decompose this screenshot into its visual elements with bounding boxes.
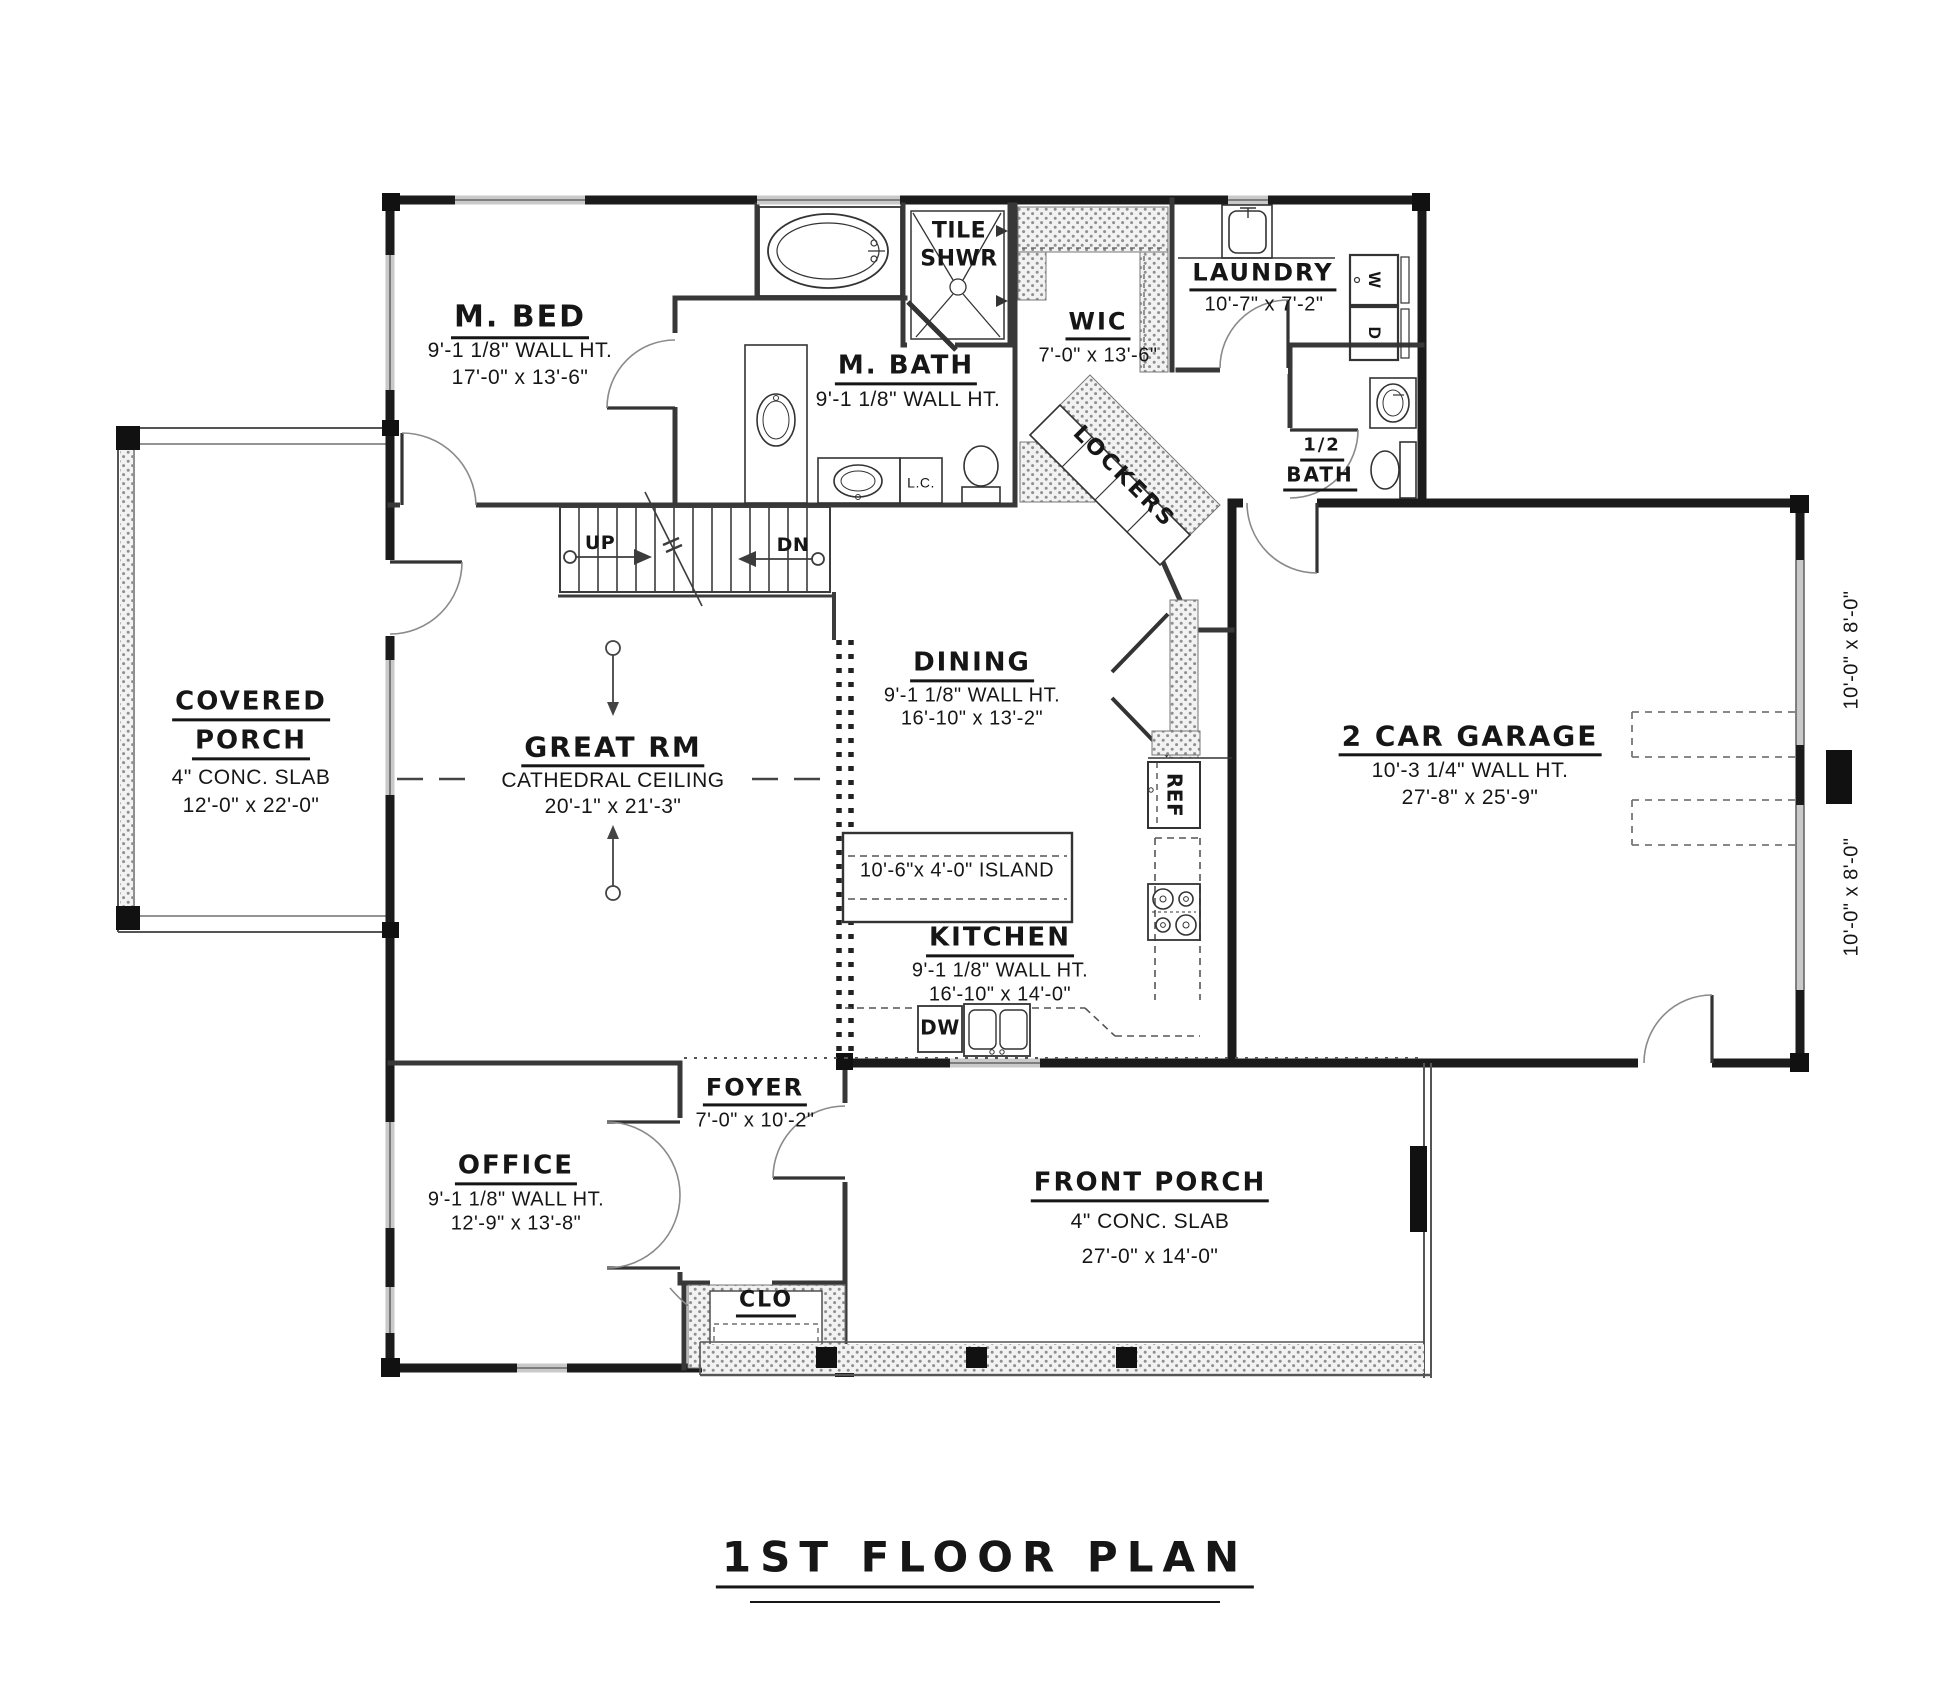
dining-wall-height: 9'-1 1/8" WALL HT. (884, 686, 1060, 707)
sheet-title-underline (750, 1601, 1220, 1603)
island-size: 10'-6"x 4'-0" ISLAND (860, 861, 1054, 882)
stairs-up-label: UP (585, 534, 615, 554)
porch-edge-hatch (120, 432, 133, 928)
linen-closet-label: L.C. (907, 476, 935, 491)
dryer-label: D (1365, 327, 1383, 340)
washer-label: W (1365, 272, 1383, 289)
room-label-foyer: FOYER (703, 1075, 807, 1106)
room-label-closet: CLO (736, 1288, 796, 1317)
garage-size: 27'-8" x 25'-9" (1402, 787, 1539, 809)
kitchen-sink (964, 1004, 1030, 1056)
room-label-m-bath: M. BATH (835, 352, 977, 385)
room-label-covered-porch-line1: COVERED (172, 688, 330, 721)
room-label-half-bath-line1: 1/2 (1300, 437, 1344, 462)
room-label-covered-porch-line2: PORCH (192, 727, 310, 760)
stairs (558, 492, 834, 640)
dishwasher-label: DW (920, 1018, 960, 1039)
half-bath-fixtures (1370, 378, 1416, 498)
room-label-dining: DINING (910, 649, 1034, 682)
room-label-garage: 2 CAR GARAGE (1339, 721, 1602, 756)
room-label-wic: WIC (1065, 309, 1130, 340)
pantry-hatch (1152, 731, 1200, 755)
room-label-office: OFFICE (455, 1152, 577, 1185)
garage-door-headers (1632, 712, 1796, 845)
wic-size: 7'-0" x 13'-6" (1039, 346, 1158, 367)
covered-porch-slab: 4" CONC. SLAB (172, 767, 331, 789)
refrigerator-label: REF (1164, 773, 1185, 817)
garage-door-size-upper: 10'-0" x 8'-0" (1842, 591, 1863, 710)
refrigerator (1148, 758, 1232, 828)
tub (759, 207, 901, 296)
covered-porch-outline (118, 428, 390, 932)
m-bed-wall-height: 9'-1 1/8" WALL HT. (428, 340, 613, 362)
room-label-front-porch: FRONT PORCH (1031, 1169, 1269, 1202)
laundry-size: 10'-7" x 7'-2" (1205, 295, 1324, 316)
kitchen-size: 16'-10" x 14'-0" (929, 985, 1071, 1006)
dining-size: 16'-10" x 13'-2" (901, 709, 1043, 730)
room-label-m-bed: M. BED (451, 301, 589, 339)
kitchen-wall-height: 9'-1 1/8" WALL HT. (912, 961, 1088, 982)
m-bath-wall-height: 9'-1 1/8" WALL HT. (816, 389, 1001, 411)
first-floor-plan: M. BED 9'-1 1/8" WALL HT. 17'-0" x 13'-6… (0, 0, 1946, 1689)
foyer-size: 7'-0" x 10'-2" (696, 1111, 815, 1132)
room-label-kitchen: KITCHEN (926, 924, 1074, 957)
garage-door-pilaster (1826, 750, 1852, 804)
front-porch-slab: 4" CONC. SLAB (1071, 1211, 1230, 1233)
great-rm-size: 20'-1" x 21'-3" (545, 796, 682, 818)
stairs-down-label: DN (777, 536, 810, 556)
front-porch-hatch (702, 1344, 1424, 1373)
front-porch-size: 27'-0" x 14'-0" (1082, 1246, 1219, 1268)
tile-shower-label-line1: TILE (932, 219, 986, 242)
garage-door-size-lower: 10'-0" x 8'-0" (1842, 838, 1863, 957)
room-label-half-bath-line2: BATH (1283, 465, 1357, 492)
office-wall-height: 9'-1 1/8" WALL HT. (428, 1190, 604, 1211)
sheet-title: 1ST FLOOR PLAN (716, 1535, 1254, 1588)
great-rm-ceiling: CATHEDRAL CEILING (501, 770, 724, 792)
m-bed-size: 17'-0" x 13'-6" (452, 367, 589, 389)
tile-shower-label-line2: SHWR (920, 247, 997, 270)
garage-wall-height: 10'-3 1/4" WALL HT. (1372, 760, 1569, 782)
room-label-laundry: LAUNDRY (1189, 260, 1336, 291)
office-size: 12'-9" x 13'-8" (451, 1214, 582, 1235)
room-label-great-rm: GREAT RM (521, 732, 704, 767)
covered-porch-size: 12'-0" x 22'-0" (183, 795, 320, 817)
